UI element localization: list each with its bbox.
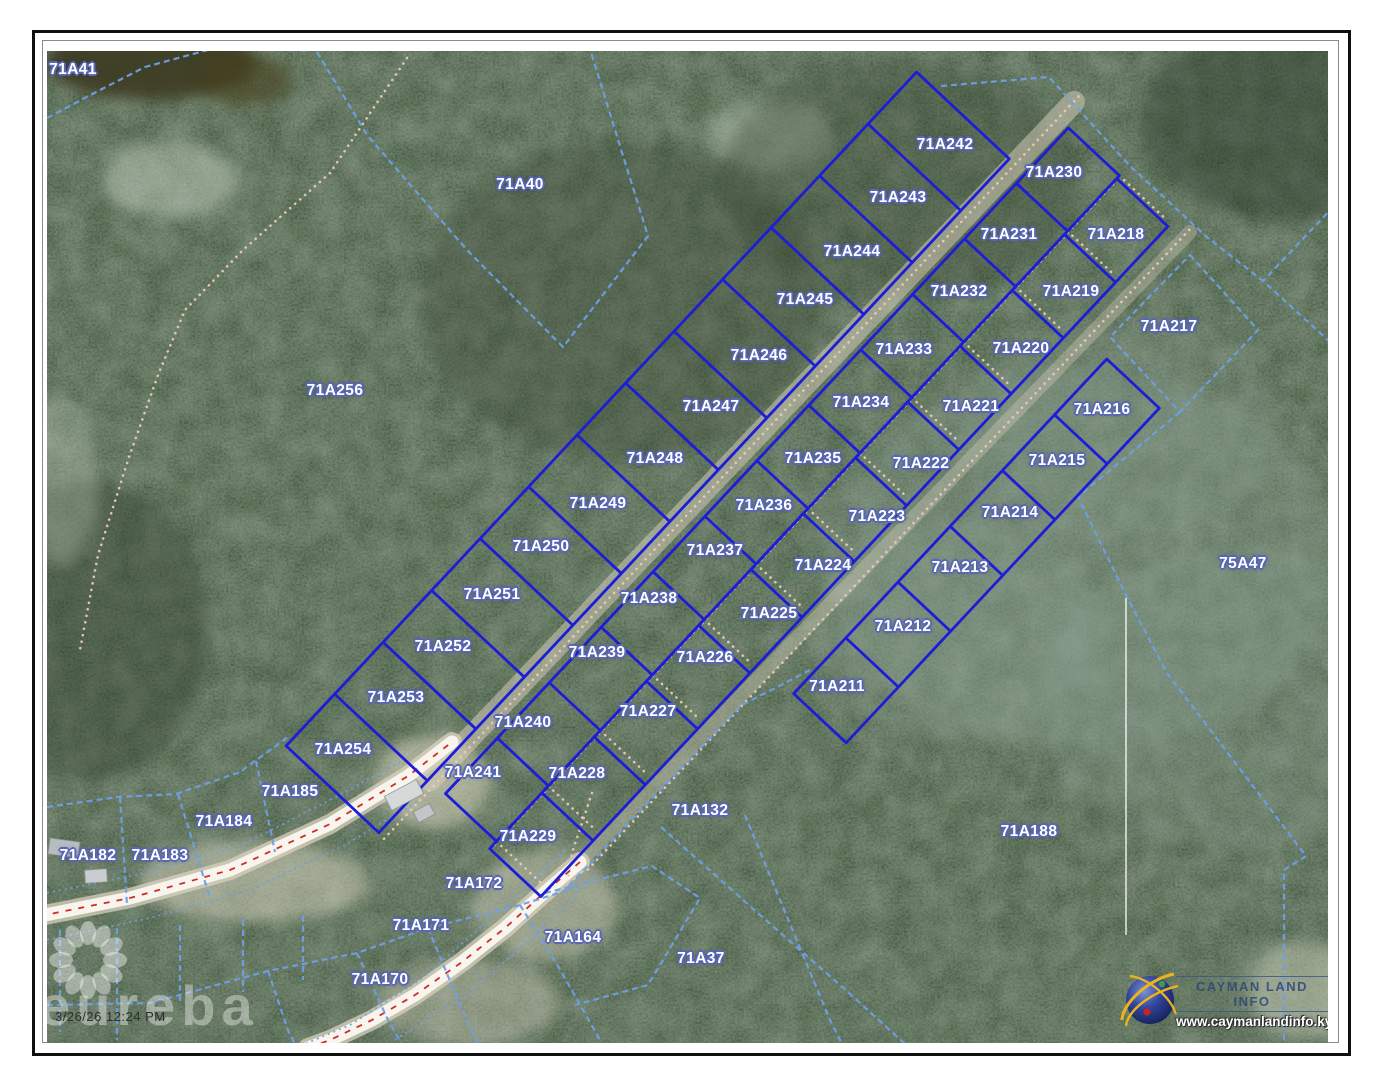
parcel-label-71A244: 71A244 bbox=[824, 243, 881, 261]
parcel-label-71A216: 71A216 bbox=[1074, 401, 1131, 419]
parcel-label-71A218: 71A218 bbox=[1088, 226, 1145, 244]
parcel-label-71A248: 71A248 bbox=[627, 450, 684, 468]
cayman-land-info-logo: CAYMAN LAND INFO www.caymanlandinfo.ky bbox=[1118, 962, 1328, 1036]
parcel-label-71A172: 71A172 bbox=[446, 875, 503, 893]
parcel-label-71A252: 71A252 bbox=[415, 638, 472, 656]
parcel-label-71A226: 71A226 bbox=[677, 649, 734, 667]
parcel-label-71A213: 71A213 bbox=[932, 559, 989, 577]
globe-red-dot bbox=[1143, 1008, 1150, 1015]
parcel-label-71A224: 71A224 bbox=[795, 557, 852, 575]
parcel-label-71A170: 71A170 bbox=[352, 971, 409, 989]
parcel-label-71A246: 71A246 bbox=[731, 347, 788, 365]
parcel-label-71A242: 71A242 bbox=[917, 136, 974, 154]
parcel-label-71A251: 71A251 bbox=[464, 586, 521, 604]
parcel-label-71A221: 71A221 bbox=[943, 398, 1000, 416]
globe-logo-icon bbox=[1118, 962, 1178, 1036]
parcel-label-71A238: 71A238 bbox=[621, 590, 678, 608]
parcel-label-71A253: 71A253 bbox=[368, 689, 425, 707]
map-export-page: 71A4171A4071A25671A24271A23071A24371A231… bbox=[0, 0, 1383, 1084]
parcel-label-71A182: 71A182 bbox=[60, 847, 117, 865]
parcel-label-71A232: 71A232 bbox=[931, 283, 988, 301]
parcel-label-71A228: 71A228 bbox=[549, 765, 606, 783]
parcel-label-71A184: 71A184 bbox=[196, 813, 253, 831]
timestamp-text: 3/26/26 12:24 PM bbox=[55, 1009, 166, 1024]
watermark-text: eureba bbox=[47, 973, 259, 1038]
parcel-label-71A185: 71A185 bbox=[262, 783, 319, 801]
parcel-label-71A234: 71A234 bbox=[833, 394, 890, 412]
parcel-label-71A214: 71A214 bbox=[982, 504, 1039, 522]
parcel-label-71A212: 71A212 bbox=[875, 618, 932, 636]
parcel-label-71A164: 71A164 bbox=[545, 929, 602, 947]
parcel-label-71A240: 71A240 bbox=[495, 714, 552, 732]
parcel-label-71A235: 71A235 bbox=[785, 450, 842, 468]
parcel-label-71A219: 71A219 bbox=[1043, 283, 1100, 301]
parcel-label-71A237: 71A237 bbox=[687, 542, 744, 560]
parcel-label-71A236: 71A236 bbox=[736, 497, 793, 515]
parcel-label-75A47: 75A47 bbox=[1219, 555, 1267, 573]
parcel-label-71A215: 71A215 bbox=[1029, 452, 1086, 470]
parcel-label-71A229: 71A229 bbox=[500, 828, 557, 846]
parcel-label-71A37: 71A37 bbox=[677, 950, 725, 968]
parcel-label-71A220: 71A220 bbox=[993, 340, 1050, 358]
parcel-label-71A223: 71A223 bbox=[849, 508, 906, 526]
parcel-label-71A243: 71A243 bbox=[870, 189, 927, 207]
parcel-label-71A171: 71A171 bbox=[393, 917, 450, 935]
logo-title: CAYMAN LAND INFO bbox=[1176, 976, 1328, 1012]
parcel-label-layer: 71A4171A4071A25671A24271A23071A24371A231… bbox=[47, 51, 1328, 1043]
parcel-label-71A40: 71A40 bbox=[496, 176, 544, 194]
parcel-label-71A217: 71A217 bbox=[1141, 318, 1198, 336]
globe-green-dot bbox=[1159, 981, 1165, 987]
parcel-label-71A222: 71A222 bbox=[893, 455, 950, 473]
parcel-label-71A245: 71A245 bbox=[777, 291, 834, 309]
parcel-label-71A225: 71A225 bbox=[741, 605, 798, 623]
parcel-label-71A254: 71A254 bbox=[315, 741, 372, 759]
parcel-label-71A183: 71A183 bbox=[132, 847, 189, 865]
parcel-label-71A241: 71A241 bbox=[445, 764, 502, 782]
parcel-label-71A230: 71A230 bbox=[1026, 164, 1083, 182]
parcel-label-71A233: 71A233 bbox=[876, 341, 933, 359]
parcel-label-71A41: 71A41 bbox=[49, 61, 97, 79]
parcel-label-71A227: 71A227 bbox=[620, 703, 677, 721]
logo-url-link[interactable]: www.caymanlandinfo.ky bbox=[1176, 1014, 1328, 1029]
parcel-label-71A247: 71A247 bbox=[683, 398, 740, 416]
parcel-label-71A256: 71A256 bbox=[307, 382, 364, 400]
parcel-label-71A231: 71A231 bbox=[981, 226, 1038, 244]
parcel-label-71A188: 71A188 bbox=[1001, 823, 1058, 841]
parcel-label-71A132: 71A132 bbox=[672, 802, 729, 820]
parcel-label-71A211: 71A211 bbox=[809, 678, 865, 696]
parcel-label-71A239: 71A239 bbox=[569, 644, 626, 662]
parcel-label-71A250: 71A250 bbox=[513, 538, 570, 556]
parcel-label-71A249: 71A249 bbox=[570, 495, 627, 513]
map-canvas[interactable]: 71A4171A4071A25671A24271A23071A24371A231… bbox=[47, 51, 1328, 1043]
